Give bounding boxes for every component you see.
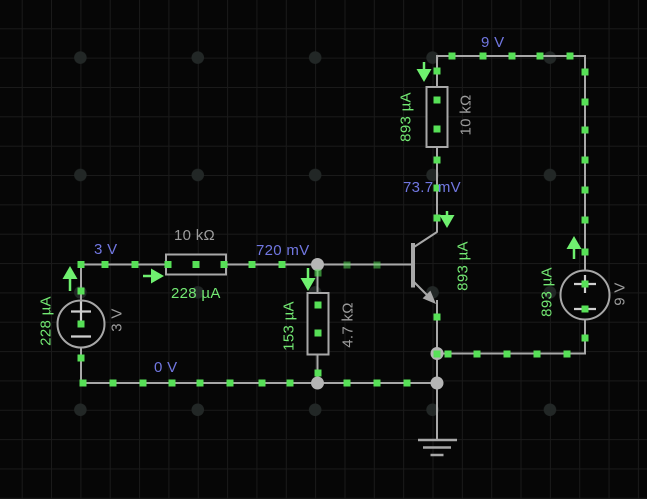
component-value-label: 3 V — [110, 308, 125, 331]
junction-nodes — [311, 258, 444, 390]
node-voltage-label: 9 V — [481, 35, 504, 50]
node-voltage-label: 0 V — [154, 360, 177, 375]
current-label: 893 µA — [456, 241, 471, 291]
node-voltage-label: 3 V — [94, 242, 117, 257]
arrow-up-icon — [567, 236, 582, 259]
resistor-collector-10k[interactable] — [427, 87, 448, 147]
npn-transistor[interactable] — [411, 232, 437, 304]
current-label: 153 µA — [282, 301, 297, 351]
circuit-canvas[interactable]: 3 V 10 kΩ 720 mV 228 µA 0 V 9 V 73.7 mV … — [0, 0, 647, 499]
transistor-base-bar — [411, 243, 415, 288]
component-value-label: 10 kΩ — [459, 94, 474, 135]
current-label: 228 µA — [171, 286, 221, 301]
transistor-collector-lead — [414, 232, 437, 247]
current-label: 893 µA — [399, 92, 414, 142]
arrow-right-icon — [143, 269, 164, 284]
current-label: 228 µA — [39, 296, 54, 346]
component-value-label: 10 kΩ — [174, 228, 215, 243]
junction-node — [431, 377, 444, 390]
component-value-label: 4.7 kΩ — [341, 302, 356, 348]
component-value-label: 9 V — [613, 282, 628, 305]
current-flow-dots — [78, 53, 589, 387]
ground-symbol[interactable] — [418, 440, 457, 455]
current-label: 893 µA — [540, 267, 555, 317]
arrow-down-icon — [417, 62, 432, 82]
arrow-down-icon — [440, 211, 455, 228]
junction-node — [311, 258, 324, 271]
junction-node — [311, 377, 324, 390]
node-voltage-label: 73.7 mV — [403, 180, 461, 195]
arrow-down-icon — [301, 268, 316, 291]
current-direction-arrows — [63, 62, 582, 291]
wires[interactable] — [80, 56, 586, 439]
arrow-up-icon — [63, 266, 78, 291]
node-voltage-label: 720 mV — [256, 243, 310, 258]
